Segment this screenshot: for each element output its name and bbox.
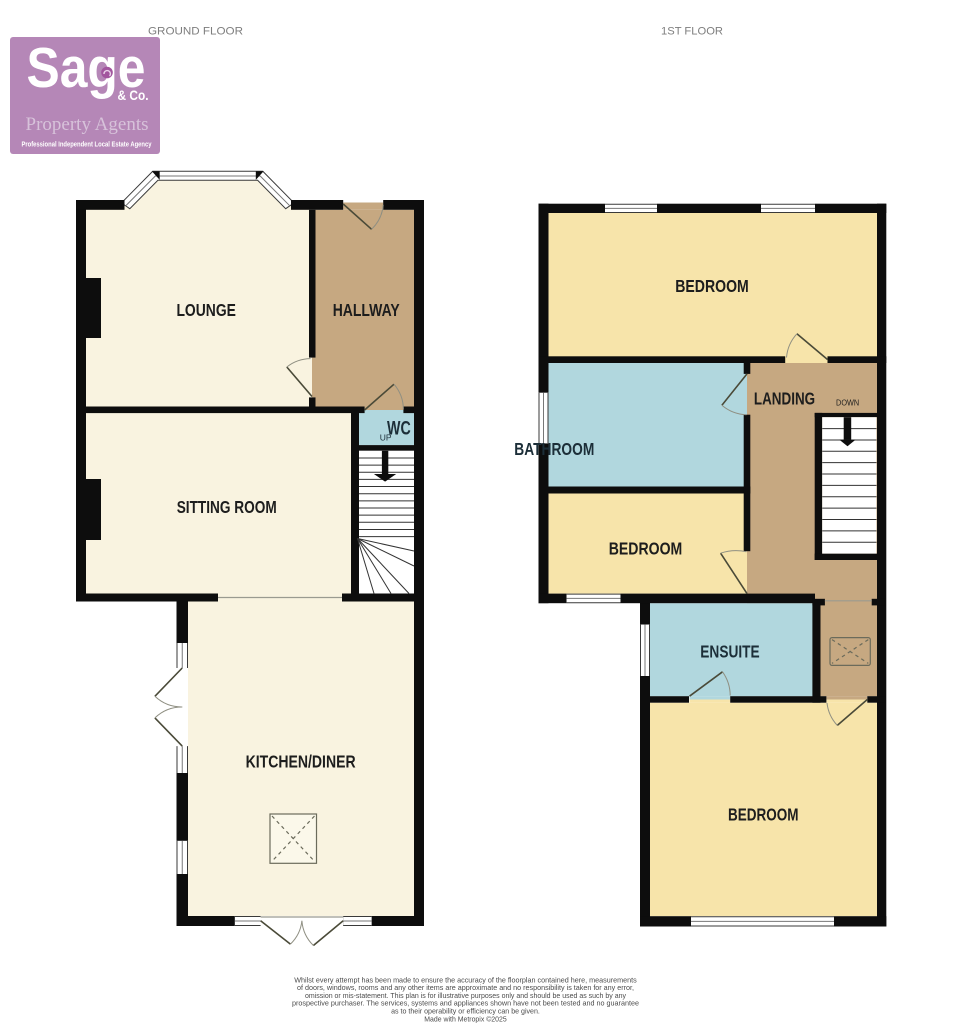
- svg-text:GROUND FLOOR: GROUND FLOOR: [148, 26, 243, 38]
- svg-text:HALLWAY: HALLWAY: [333, 300, 400, 320]
- svg-text:DOWN: DOWN: [836, 397, 859, 407]
- svg-text:& Co.: & Co.: [118, 88, 149, 103]
- svg-text:BEDROOM: BEDROOM: [728, 804, 799, 824]
- svg-text:1ST FLOOR: 1ST FLOOR: [661, 26, 723, 38]
- svg-text:BEDROOM: BEDROOM: [675, 276, 749, 296]
- svg-text:Made with Metropix ©2025: Made with Metropix ©2025: [424, 1014, 506, 1023]
- svg-text:Professional Independent Local: Professional Independent Local Estate Ag…: [22, 142, 152, 149]
- svg-text:UP: UP: [380, 433, 392, 443]
- svg-text:BATHROOM: BATHROOM: [514, 439, 594, 459]
- svg-text:ENSUITE: ENSUITE: [700, 641, 759, 661]
- svg-text:LANDING: LANDING: [754, 388, 815, 408]
- svg-text:LOUNGE: LOUNGE: [176, 300, 236, 320]
- svg-text:SITTING ROOM: SITTING ROOM: [177, 497, 277, 517]
- svg-text:KITCHEN/DINER: KITCHEN/DINER: [246, 751, 356, 771]
- svg-text:Property Agents: Property Agents: [26, 114, 149, 135]
- svg-text:BEDROOM: BEDROOM: [609, 539, 683, 559]
